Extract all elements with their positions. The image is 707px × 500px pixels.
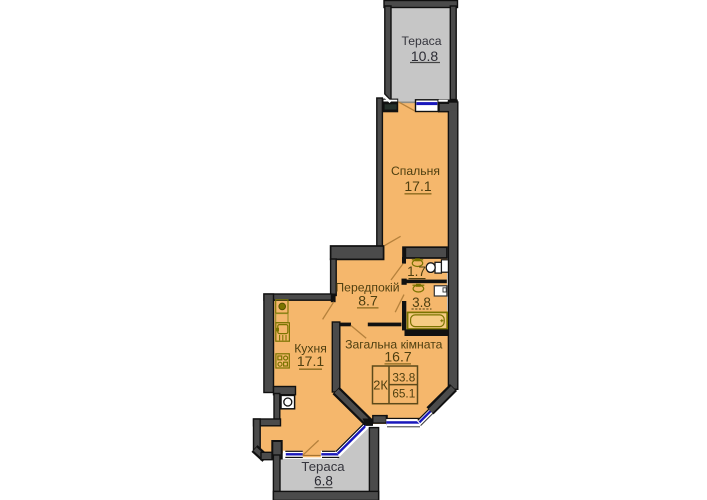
svg-text:33.8: 33.8 <box>392 371 415 385</box>
svg-text:6.8: 6.8 <box>314 473 333 488</box>
svg-text:8.7: 8.7 <box>358 293 378 309</box>
svg-text:Спальня: Спальня <box>391 164 440 178</box>
svg-text:1.7: 1.7 <box>407 264 426 279</box>
svg-text:16.7: 16.7 <box>384 349 411 365</box>
svg-text:17.1: 17.1 <box>404 178 431 194</box>
svg-text:Тераса: Тераса <box>301 459 345 474</box>
svg-text:17.1: 17.1 <box>297 353 324 369</box>
svg-text:Тераса: Тераса <box>402 34 442 48</box>
svg-text:10.8: 10.8 <box>411 48 438 64</box>
svg-text:2К: 2К <box>373 377 388 392</box>
svg-text:65.1: 65.1 <box>392 387 415 401</box>
svg-text:3.8: 3.8 <box>412 295 431 310</box>
